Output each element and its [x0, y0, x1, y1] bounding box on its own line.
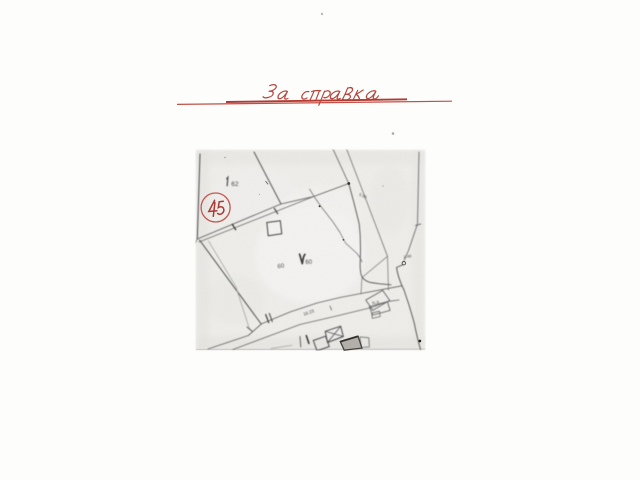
svg-text:60: 60 [305, 260, 312, 266]
svg-text:62: 62 [231, 181, 239, 188]
